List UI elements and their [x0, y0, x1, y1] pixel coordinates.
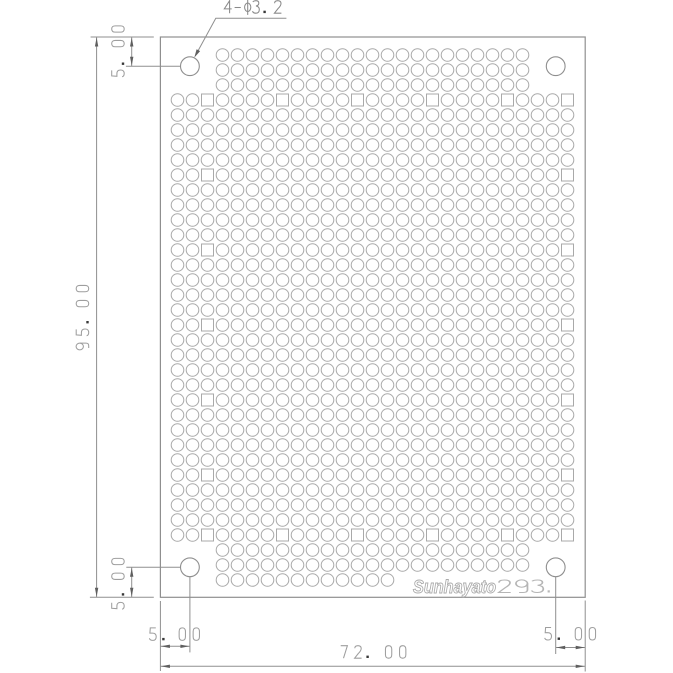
svg-text:Sunhayato: Sunhayato [413, 577, 496, 597]
